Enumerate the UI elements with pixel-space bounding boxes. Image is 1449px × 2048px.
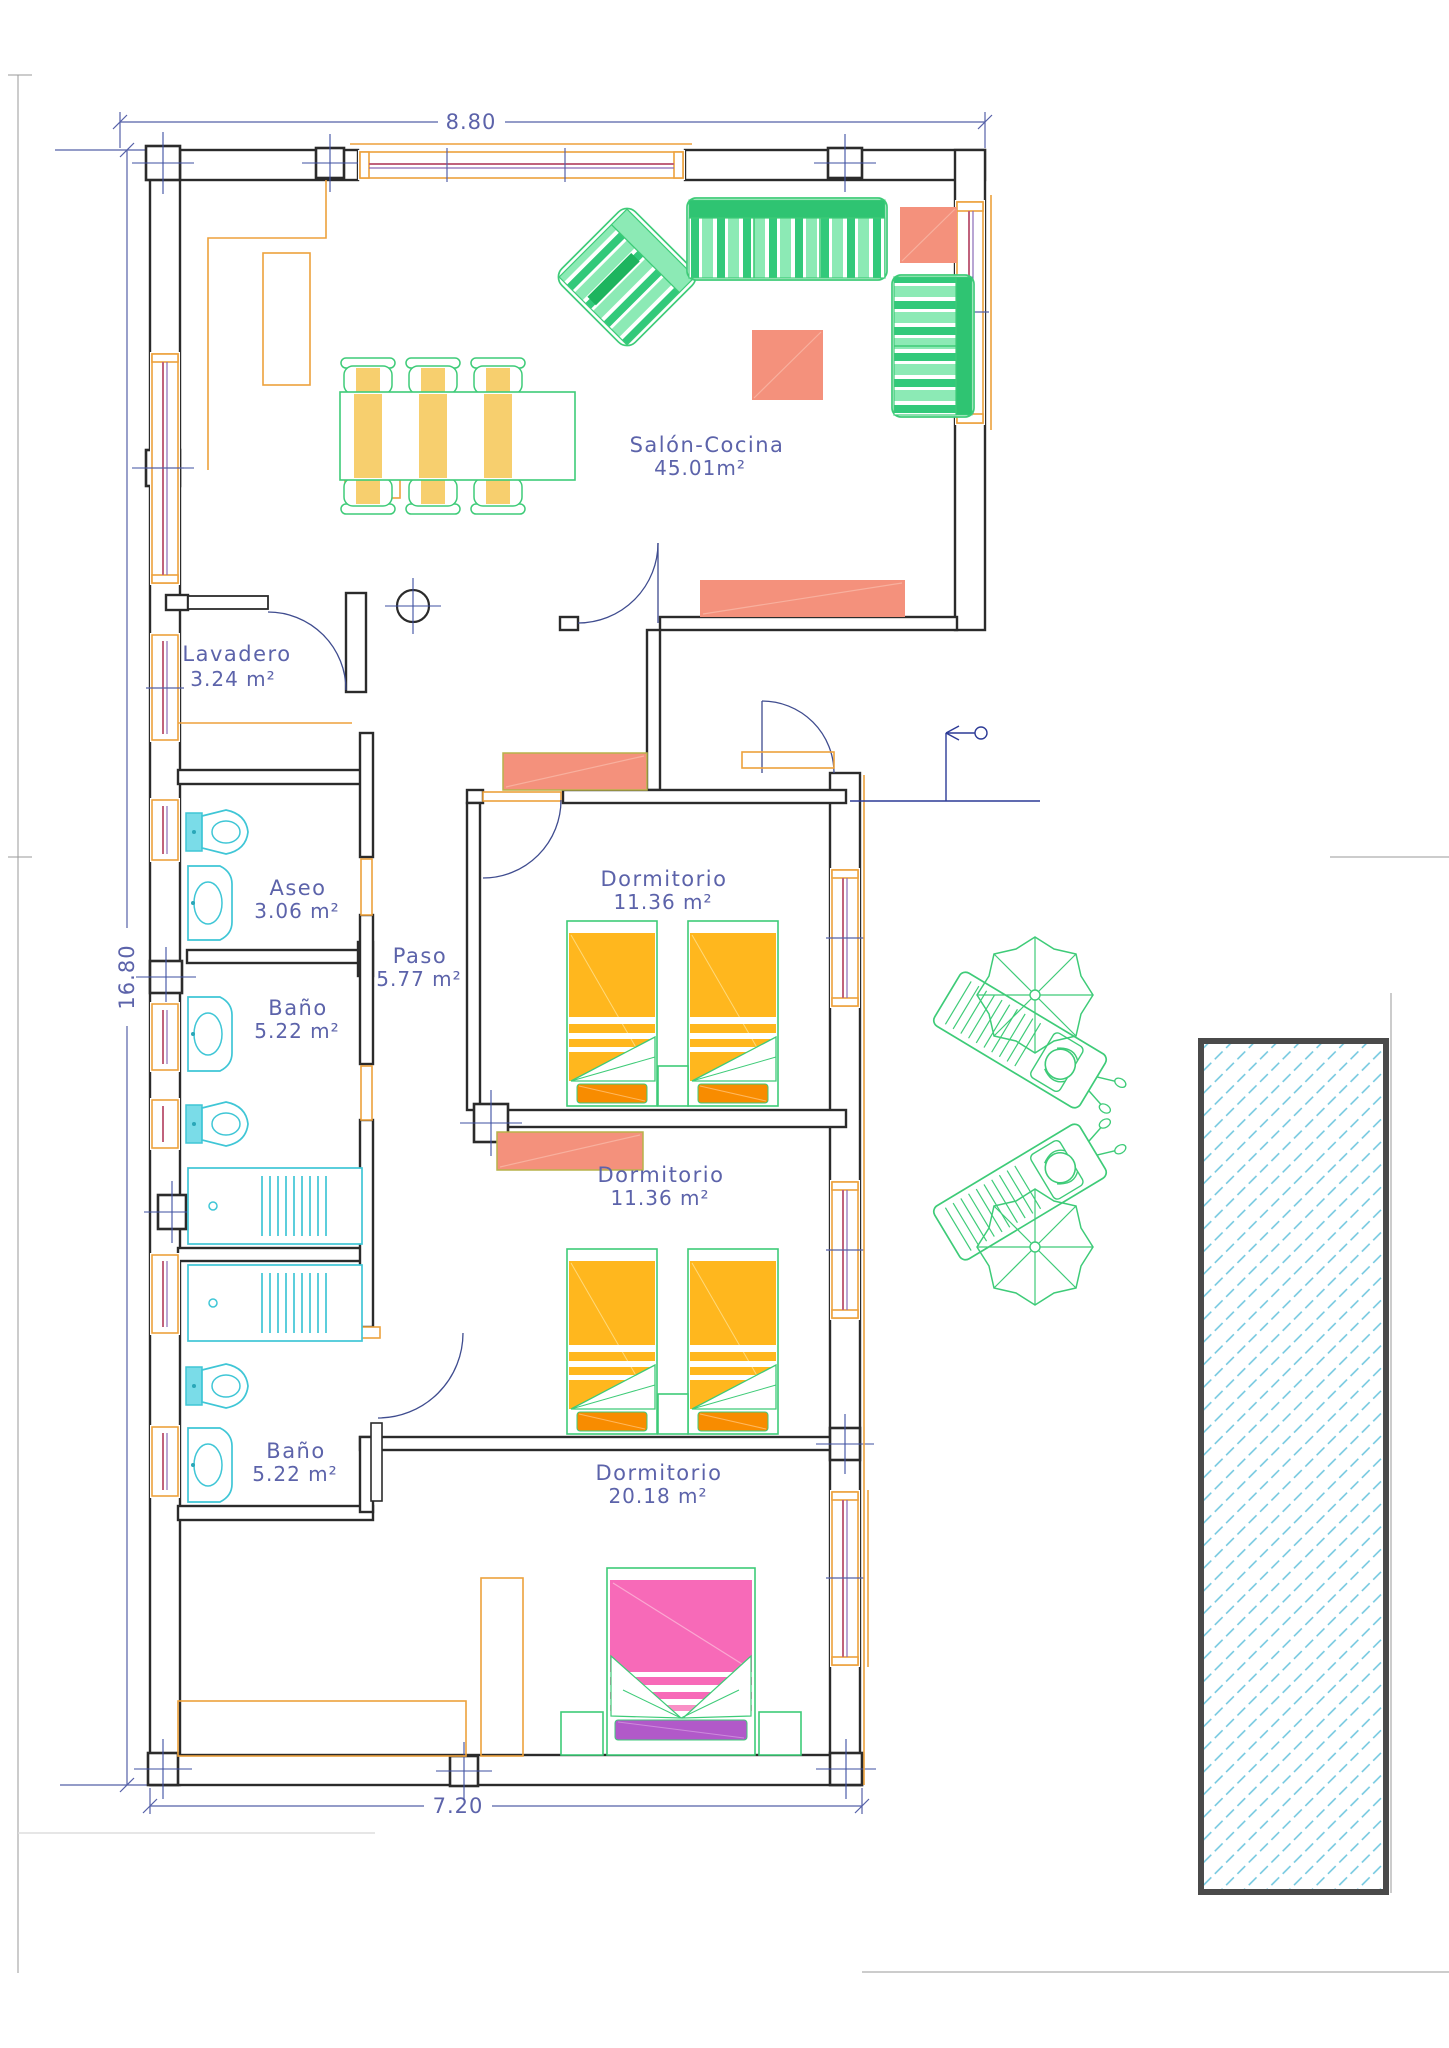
room-area-dormitorio-2: 11.36 m² bbox=[610, 1186, 709, 1210]
window bbox=[350, 144, 692, 182]
dimension-bottom: 7.20 bbox=[433, 1794, 484, 1818]
wardrobe bbox=[178, 1701, 466, 1756]
toilet bbox=[186, 810, 248, 854]
shower-tray bbox=[188, 1168, 362, 1244]
column bbox=[816, 1739, 876, 1799]
room-label-banyo-2: Baño bbox=[266, 1439, 325, 1463]
column bbox=[816, 1414, 874, 1474]
wardrobe bbox=[481, 1578, 523, 1756]
dining-set bbox=[340, 358, 575, 514]
door-banyo-1 bbox=[361, 1066, 372, 1120]
desk-dormitorio-1 bbox=[503, 753, 647, 790]
sideboard bbox=[700, 580, 905, 617]
room-area-lavadero: 3.24 m² bbox=[190, 667, 275, 691]
sofa-2-seat bbox=[892, 275, 974, 417]
dimension-top: 8.80 bbox=[446, 110, 497, 134]
window bbox=[150, 1002, 180, 1072]
column bbox=[302, 134, 358, 192]
entry-arrow bbox=[850, 726, 1040, 801]
window bbox=[150, 798, 180, 862]
parasol bbox=[977, 1189, 1093, 1305]
swimming-pool bbox=[1201, 1041, 1386, 1892]
twin-bed bbox=[567, 1249, 657, 1434]
door-dormitorio-2 bbox=[360, 1327, 463, 1501]
room-area-aseo: 3.06 m² bbox=[254, 899, 339, 923]
column-circle-marker bbox=[385, 578, 441, 634]
room-area-banyo-1: 5.22 m² bbox=[254, 1019, 339, 1043]
washbasin bbox=[188, 1428, 232, 1502]
armchair bbox=[553, 203, 700, 350]
window bbox=[150, 1425, 180, 1498]
window bbox=[826, 1180, 864, 1320]
door-entry bbox=[742, 701, 834, 773]
room-label-aseo: Aseo bbox=[269, 876, 326, 900]
nightstand bbox=[658, 1066, 688, 1106]
room-area-dormitorio-3: 20.18 m² bbox=[608, 1484, 707, 1508]
room-area-banyo-2: 5.22 m² bbox=[252, 1462, 337, 1486]
column bbox=[814, 134, 876, 192]
washbasin bbox=[188, 866, 232, 940]
door-dormitorio-1 bbox=[483, 792, 561, 878]
room-label-dormitorio-3: Dormitorio bbox=[596, 1461, 723, 1485]
room-label-dormitorio-1: Dormitorio bbox=[601, 867, 728, 891]
window bbox=[146, 352, 184, 585]
sofa-3-seat bbox=[687, 198, 887, 280]
coffee-table bbox=[752, 330, 823, 400]
washbasin bbox=[188, 997, 232, 1071]
door-aseo bbox=[361, 859, 372, 915]
exterior bbox=[931, 937, 1386, 1892]
kitchen-island bbox=[263, 253, 310, 385]
side-table bbox=[900, 207, 957, 263]
room-label-lavadero: Lavadero bbox=[182, 642, 291, 666]
nightstand bbox=[759, 1712, 801, 1755]
nightstand bbox=[658, 1394, 688, 1434]
room-label-banyo-1: Baño bbox=[268, 996, 327, 1020]
window bbox=[826, 868, 864, 1008]
room-area-paso: 5.77 m² bbox=[376, 967, 461, 991]
shower-tray bbox=[188, 1265, 362, 1341]
twin-bed bbox=[567, 921, 657, 1106]
room-area-salon: 45.01m² bbox=[654, 456, 746, 480]
door-salon bbox=[578, 543, 658, 623]
twin-bed bbox=[688, 1249, 778, 1434]
double-bed bbox=[561, 1568, 801, 1755]
nightstand bbox=[561, 1712, 603, 1755]
room-label-dormitorio-2: Dormitorio bbox=[598, 1163, 725, 1187]
window bbox=[146, 633, 184, 742]
parasol bbox=[977, 937, 1093, 1053]
column bbox=[134, 1739, 192, 1799]
toilet bbox=[186, 1364, 248, 1408]
room-label-salon: Salón-Cocina bbox=[630, 433, 785, 457]
twin-bed bbox=[688, 921, 778, 1106]
column bbox=[436, 1742, 492, 1800]
floor-plan-drawing: 8.80 16.80 7.20 bbox=[0, 0, 1449, 2048]
window bbox=[150, 1098, 180, 1150]
dimension-left: 16.80 bbox=[115, 944, 139, 1009]
room-label-paso: Paso bbox=[393, 944, 447, 968]
window bbox=[150, 1253, 180, 1335]
room-area-dormitorio-1: 11.36 m² bbox=[613, 890, 712, 914]
window bbox=[826, 1490, 864, 1667]
column bbox=[132, 132, 194, 194]
toilet bbox=[186, 1102, 248, 1146]
floor-plan-sheet: 8.80 16.80 7.20 bbox=[0, 0, 1449, 2048]
sun-lounger bbox=[931, 1107, 1134, 1263]
